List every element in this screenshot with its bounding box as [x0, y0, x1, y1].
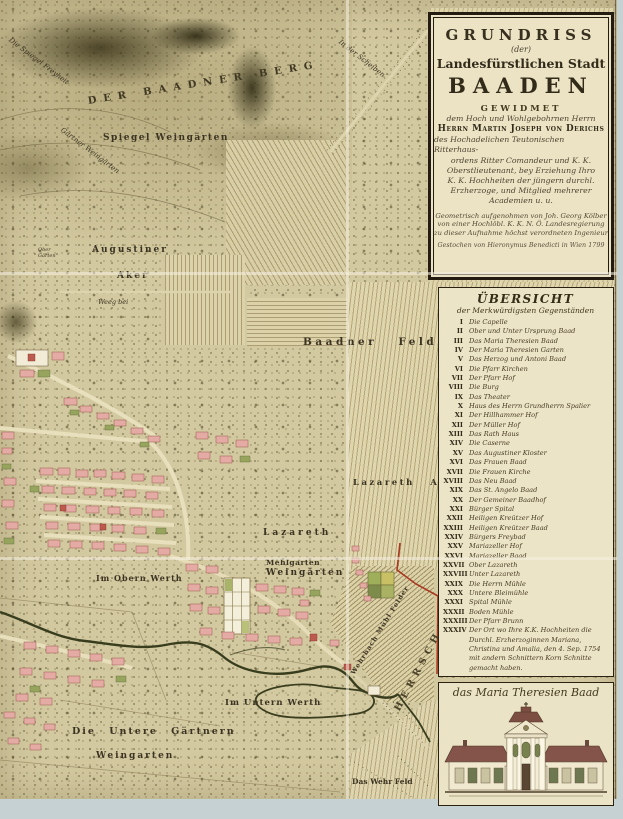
legend-item-label: Das Rath Haus	[469, 430, 519, 439]
legend-item: XXII Heiligen Kreützer Hof	[443, 514, 608, 523]
legend-item-numeral: XIX	[443, 486, 469, 495]
legend-item-numeral: XV	[443, 449, 469, 458]
legend-item-numeral: XXXIII	[443, 617, 469, 626]
legend-item-label: Ober Lazareth	[469, 561, 517, 570]
dedication-line-4: Oberstlieutenant, bey Erziehung Ihro	[447, 166, 595, 176]
legend-item-numeral: XXVIII	[443, 570, 469, 579]
legend-item-label: Mariazeller Hof	[469, 542, 522, 551]
legend-item-label: Bürgers Freybad	[469, 533, 526, 542]
dedication-name: Herrn Martin Joseph von Derichs	[438, 124, 605, 135]
legend-title: ÜBERSICHT	[443, 292, 608, 306]
legend-item: XXV Mariazeller Hof	[443, 542, 608, 551]
label-augustiner: Augustiner	[92, 245, 168, 255]
label-weingaerten: Weingärten	[266, 568, 344, 578]
legend-item: XXXI Spital Mühle	[443, 598, 608, 607]
scanned-map-page: DER BAADNER BERG Die Spiegel Freyheit Gä…	[0, 0, 623, 819]
legend-item: XVII Die Frauen Kirche	[443, 468, 608, 477]
legend-item-label: Der Pfarr Hof	[469, 374, 515, 383]
legend-item-numeral: XXVI	[443, 552, 469, 561]
roads	[60, 28, 432, 799]
legend-item-numeral: XXIV	[443, 533, 469, 542]
dedication-line-3: ordens Ritter Comandeur und K. K.	[451, 156, 591, 166]
legend-item: XXVII Ober Lazareth	[443, 561, 608, 570]
surveyor-line-2: von einer Hochlöbl. K. K. N. Ö. Landesre…	[438, 220, 605, 229]
legend-item-numeral: I	[443, 318, 469, 327]
legend-item: XX Der Gemeiner Baadhof	[443, 496, 608, 505]
legend-item: II Ober und Unter Ursprung Baad	[443, 327, 608, 336]
legend-item-numeral: XII	[443, 421, 469, 430]
legend-item-label: Ober und Unter Ursprung Baad	[469, 327, 575, 336]
legend-item-numeral: XVI	[443, 458, 469, 467]
legend-item-numeral: VIII	[443, 383, 469, 392]
legend-item: XI Der Hillhammer Hof	[443, 411, 608, 420]
legend-item: XXIII Heiligen Kreützer Baad	[443, 524, 608, 533]
dedication-line-2: des Hochadelichen Teutonischen Ritterhau…	[434, 135, 608, 155]
label-spiegel-weingaerten: Spiegel Weingärten	[103, 133, 229, 143]
dedication-line-5: K. K. Hochheiten der jüngern durchl.	[447, 176, 594, 186]
legend-item: XVI Das Frauen Baad	[443, 458, 608, 467]
legend-item: XXI Bürger Spital	[443, 505, 608, 514]
map-title-stadt: Landesfürstlichen Stadt	[437, 56, 606, 71]
legend-item-label: Haus des Herrn Grundherrn Spalier	[469, 402, 590, 411]
map-title-grundriss: GRUNDRISS	[446, 26, 597, 44]
legend-item-numeral: XXX	[443, 589, 469, 598]
legend-item: XXXII Boden Mühle	[443, 608, 608, 617]
legend-item-label: Die Caserne	[469, 439, 510, 448]
legend-item-numeral: XXXII	[443, 608, 469, 617]
mehlgarten-grid-block	[224, 578, 250, 634]
legend-item-label: Heiligen Kreützer Hof	[469, 514, 543, 523]
legend-item-numeral: XVIII	[443, 477, 469, 486]
legend-item-numeral: XI	[443, 411, 469, 420]
legend-item-label: Das Neu Baad	[469, 477, 517, 486]
engraver-line: Gestochen von Hieronymus Benedicti in Wi…	[438, 241, 605, 249]
picture-panel: das Maria Theresien Baad	[438, 682, 614, 806]
map-title-der: (der)	[511, 45, 531, 54]
legend-item-numeral: II	[443, 327, 469, 336]
legend-item-label: Das Frauen Baad	[469, 458, 527, 467]
legend-item-numeral: XIV	[443, 439, 469, 448]
legend-item-numeral: XIII	[443, 430, 469, 439]
picture-caption: das Maria Theresien Baad	[443, 686, 609, 700]
label-aker: Aker	[117, 271, 149, 281]
legend-item-numeral: XXXI	[443, 598, 469, 607]
legend-subtitle: der Merkwürdigsten Gegenständen	[443, 306, 608, 315]
surveyor-line-3: zu dieser Aufnahme höchst verordneten In…	[434, 229, 608, 238]
legend-item-numeral: XVII	[443, 468, 469, 477]
legend-item-label: Das Maria Theresien Baad	[469, 337, 558, 346]
dedication-heading: GEWIDMET	[481, 104, 562, 114]
label-baadner-feld: Baadner Feld	[303, 336, 437, 348]
maria-theresien-baad-engraving	[443, 700, 609, 800]
river	[0, 612, 430, 742]
legend-item-label: Der Müller Hof	[469, 421, 520, 430]
label-das-wehr-feld: Das Wehr Feld	[352, 777, 413, 786]
legend-item: X Haus des Herrn Grundherrn Spalier	[443, 402, 608, 411]
map-title-baaden: BAADEN	[448, 73, 594, 98]
dedication-line-1: dem Hoch und Wohlgebohrnen Herrn	[446, 114, 595, 124]
legend-item: VII Der Pfarr Hof	[443, 374, 608, 383]
legend-item: XIII Das Rath Haus	[443, 430, 608, 439]
map-sheet: DER BAADNER BERG Die Spiegel Freyheit Gä…	[0, 0, 617, 799]
legend-item: V Das Herzog und Antoni Baad	[443, 355, 608, 364]
legend-item: XV Das Augustiner Kloster	[443, 449, 608, 458]
legend-item-label: Heiligen Kreützer Baad	[469, 524, 548, 533]
legend-item: XXXIV Der Ort wo Ihre K.K. Hochheiten di…	[443, 626, 608, 673]
legend-item: XXX Untere Bleimühle	[443, 589, 608, 598]
legend-item-label: Der Hillhammer Hof	[469, 411, 538, 420]
legend-item: XXXIII Der Pfarr Brunn	[443, 617, 608, 626]
legend-item-label: Die Herrn Mühle	[469, 580, 526, 589]
legend-item-label: Die Capelle	[469, 318, 508, 327]
legend-items: I Die Capelle II Ober und Unter Ursprung…	[443, 318, 608, 673]
legend-item-numeral: XXIX	[443, 580, 469, 589]
legend-item-label: Unter Lazareth	[469, 570, 520, 579]
label-weingarten: Weingarten	[96, 751, 174, 761]
label-die-untere-gaertnern: Die Untere Gärtnern	[72, 726, 236, 737]
legend-item-numeral: XX	[443, 496, 469, 505]
dedication-line-7: Academien u. u.	[489, 196, 553, 206]
legend-item: XIV Die Caserne	[443, 439, 608, 448]
legend-item: XII Der Müller Hof	[443, 421, 608, 430]
legend-item-label: Die Frauen Kirche	[469, 468, 531, 477]
legend-item-label: Untere Bleimühle	[469, 589, 528, 598]
legend-item-numeral: VII	[443, 374, 469, 383]
label-lazareth: Lazareth	[263, 528, 331, 538]
legend-item-numeral: XXII	[443, 514, 469, 523]
title-cartouche: GRUNDRISS (der) Landesfürstlichen Stadt …	[428, 12, 614, 280]
label-weeg-bei: Weeg bei	[98, 298, 128, 306]
surveyor-line-1: Geometrisch aufgenohmen von Joh. Georg K…	[435, 212, 606, 221]
legend-item: IV Der Maria Theresien Garten	[443, 346, 608, 355]
label-ober-gaerten: Ober Gärten	[38, 247, 64, 259]
legend-item-label: Das Augustiner Kloster	[469, 449, 547, 458]
legend-item-label: Bürger Spital	[469, 505, 514, 514]
legend-item-numeral: XXV	[443, 542, 469, 551]
label-im-obern-werth: Im Obern Werth	[96, 573, 183, 583]
legend-item-label: Die Burg	[469, 383, 499, 392]
legend-item-numeral: XXVII	[443, 561, 469, 570]
dedication-line-6: Erzherzoge, und Mitglied mehrerer	[451, 186, 592, 196]
legend-item: III Das Maria Theresien Baad	[443, 337, 608, 346]
legend-item: IX Das Theater	[443, 393, 608, 402]
garden-cells	[368, 572, 394, 598]
legend-item-numeral: XXI	[443, 505, 469, 514]
legend-item-label: Die Pfarr Kirchen	[469, 365, 528, 374]
legend-item-label: Mariazeller Baad	[469, 552, 527, 561]
title-cartouche-inner: GRUNDRISS (der) Landesfürstlichen Stadt …	[433, 17, 609, 275]
legend-item: XVIII Das Neu Baad	[443, 477, 608, 486]
legend-item-numeral: IX	[443, 393, 469, 402]
legend-panel: ÜBERSICHT der Merkwürdigsten Gegenstände…	[438, 287, 614, 677]
legend-item-numeral: VI	[443, 365, 469, 374]
legend-item-label: Das Herzog und Antoni Baad	[469, 355, 566, 364]
legend-item-label: Der Gemeiner Baadhof	[469, 496, 546, 505]
legend-item-numeral: V	[443, 355, 469, 364]
label-mehlgarten: Mehlgarten	[266, 558, 320, 567]
map-neatline-right	[615, 0, 616, 799]
legend-item: VIII Die Burg	[443, 383, 608, 392]
legend-item: XIX Das St. Angelo Baad	[443, 486, 608, 495]
legend-item-label: Der Ort wo Ihre K.K. Hochheiten die Durc…	[469, 626, 608, 673]
legend-item-numeral: X	[443, 402, 469, 411]
legend-item-numeral: XXXIV	[443, 626, 469, 673]
legend-item-numeral: XXIII	[443, 524, 469, 533]
legend-item-label: Spital Mühle	[469, 598, 512, 607]
legend-item-label: Boden Mühle	[469, 608, 514, 617]
legend-item-numeral: III	[443, 337, 469, 346]
legend-item: I Die Capelle	[443, 318, 608, 327]
legend-item-label: Das St. Angelo Baad	[469, 486, 537, 495]
legend-item: XXVI Mariazeller Baad	[443, 552, 608, 561]
legend-item: VI Die Pfarr Kirchen	[443, 365, 608, 374]
legend-item: XXIV Bürgers Freybad	[443, 533, 608, 542]
legend-item: XXIX Die Herrn Mühle	[443, 580, 608, 589]
label-im-untern-werth: Im Untern Werth	[225, 698, 321, 708]
legend-item-label: Der Pfarr Brunn	[469, 617, 523, 626]
legend-item: XXVIII Unter Lazareth	[443, 570, 608, 579]
legend-item-label: Das Theater	[469, 393, 510, 402]
legend-item-label: Der Maria Theresien Garten	[469, 346, 564, 355]
legend-item-numeral: IV	[443, 346, 469, 355]
